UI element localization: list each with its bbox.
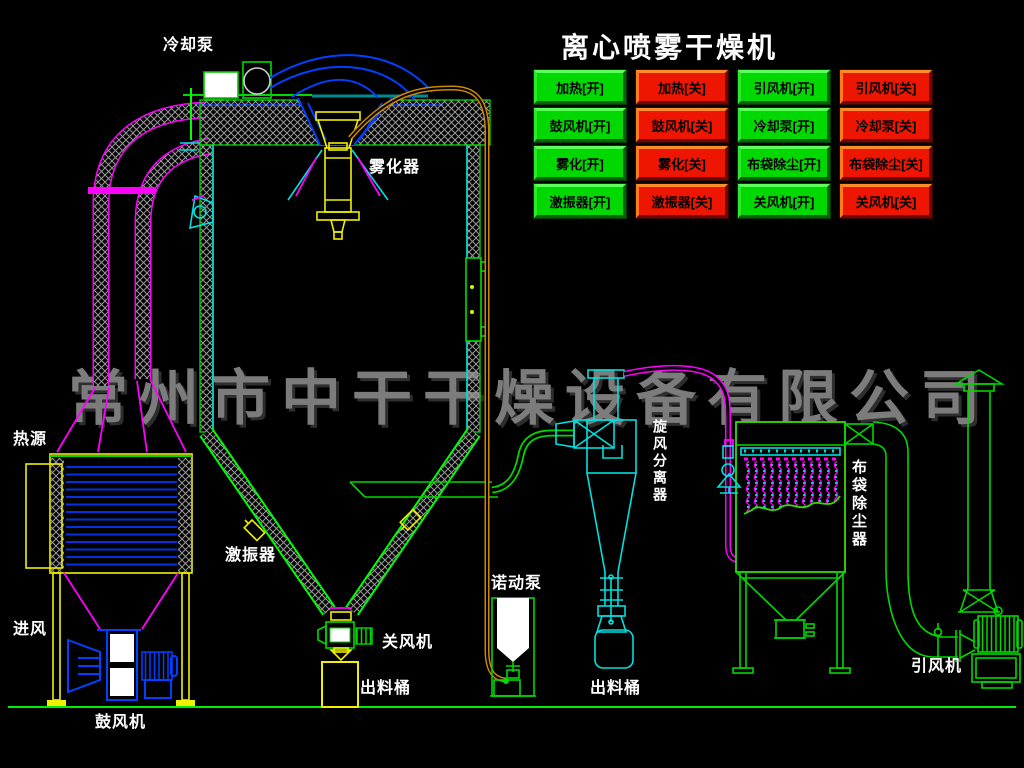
btn-blower-off[interactable]: 鼓风机[关] <box>636 108 728 142</box>
btn-rotary-valve-off[interactable]: 关风机[关] <box>840 184 932 218</box>
cyclone-separator <box>556 370 636 668</box>
btn-atomizer-on[interactable]: 雾化[开] <box>534 146 626 180</box>
label-rotary-valve: 关风机 <box>382 628 433 652</box>
label-bag-filter: 布袋除尘器 <box>848 459 869 549</box>
label-discharge-bucket-2: 出料桶 <box>590 674 641 698</box>
label-atomizer: 雾化器 <box>369 153 420 177</box>
label-vibrator: 激振器 <box>225 541 276 565</box>
btn-heater-on[interactable]: 加热[开] <box>534 70 626 104</box>
peristaltic-pump <box>490 598 536 696</box>
blower <box>68 630 177 700</box>
label-air-inlet: 进风 <box>13 615 47 639</box>
btn-rotary-valve-on[interactable]: 关风机[开] <box>738 184 830 218</box>
label-blower: 鼓风机 <box>95 708 146 732</box>
btn-vibrator-on[interactable]: 激振器[开] <box>534 184 626 218</box>
control-panel: 加热[开] 加热[关] 引风机[开] 引风机[关] 鼓风机[开] 鼓风机[关] … <box>534 70 932 218</box>
hmi-screen: 常州市中干干燥设备有限公司 <box>0 0 1024 768</box>
btn-bag-filter-off[interactable]: 布袋除尘[关] <box>840 146 932 180</box>
rotary-valve <box>318 612 372 660</box>
discharge-bucket-left <box>322 662 358 707</box>
induced-draft-fan <box>845 370 1022 688</box>
btn-cooling-pump-on[interactable]: 冷却泵[开] <box>738 108 830 142</box>
btn-heater-off[interactable]: 加热[关] <box>636 70 728 104</box>
btn-atomizer-off[interactable]: 雾化[关] <box>636 146 728 180</box>
btn-id-fan-on[interactable]: 引风机[开] <box>738 70 830 104</box>
label-peristaltic-pump: 诺动泵 <box>491 569 542 593</box>
cyclone-outlet-pipe <box>624 368 740 560</box>
btn-cooling-pump-off[interactable]: 冷却泵[关] <box>840 108 932 142</box>
btn-blower-on[interactable]: 鼓风机[开] <box>534 108 626 142</box>
btn-vibrator-off[interactable]: 激振器[关] <box>636 184 728 218</box>
label-heat-source: 热源 <box>13 425 47 449</box>
label-cyclone: 旋风分离器 <box>650 419 670 504</box>
label-discharge-bucket-1: 出料桶 <box>360 674 411 698</box>
btn-id-fan-off[interactable]: 引风机[关] <box>840 70 932 104</box>
exhaust-ducts <box>57 110 211 452</box>
label-induced-draft-fan: 引风机 <box>911 652 962 676</box>
btn-bag-filter-on[interactable]: 布袋除尘[开] <box>738 146 830 180</box>
page-title: 离心喷雾干燥机 <box>561 26 778 66</box>
label-cooling-pump: 冷却泵 <box>163 31 214 55</box>
bag-filter <box>718 422 850 673</box>
